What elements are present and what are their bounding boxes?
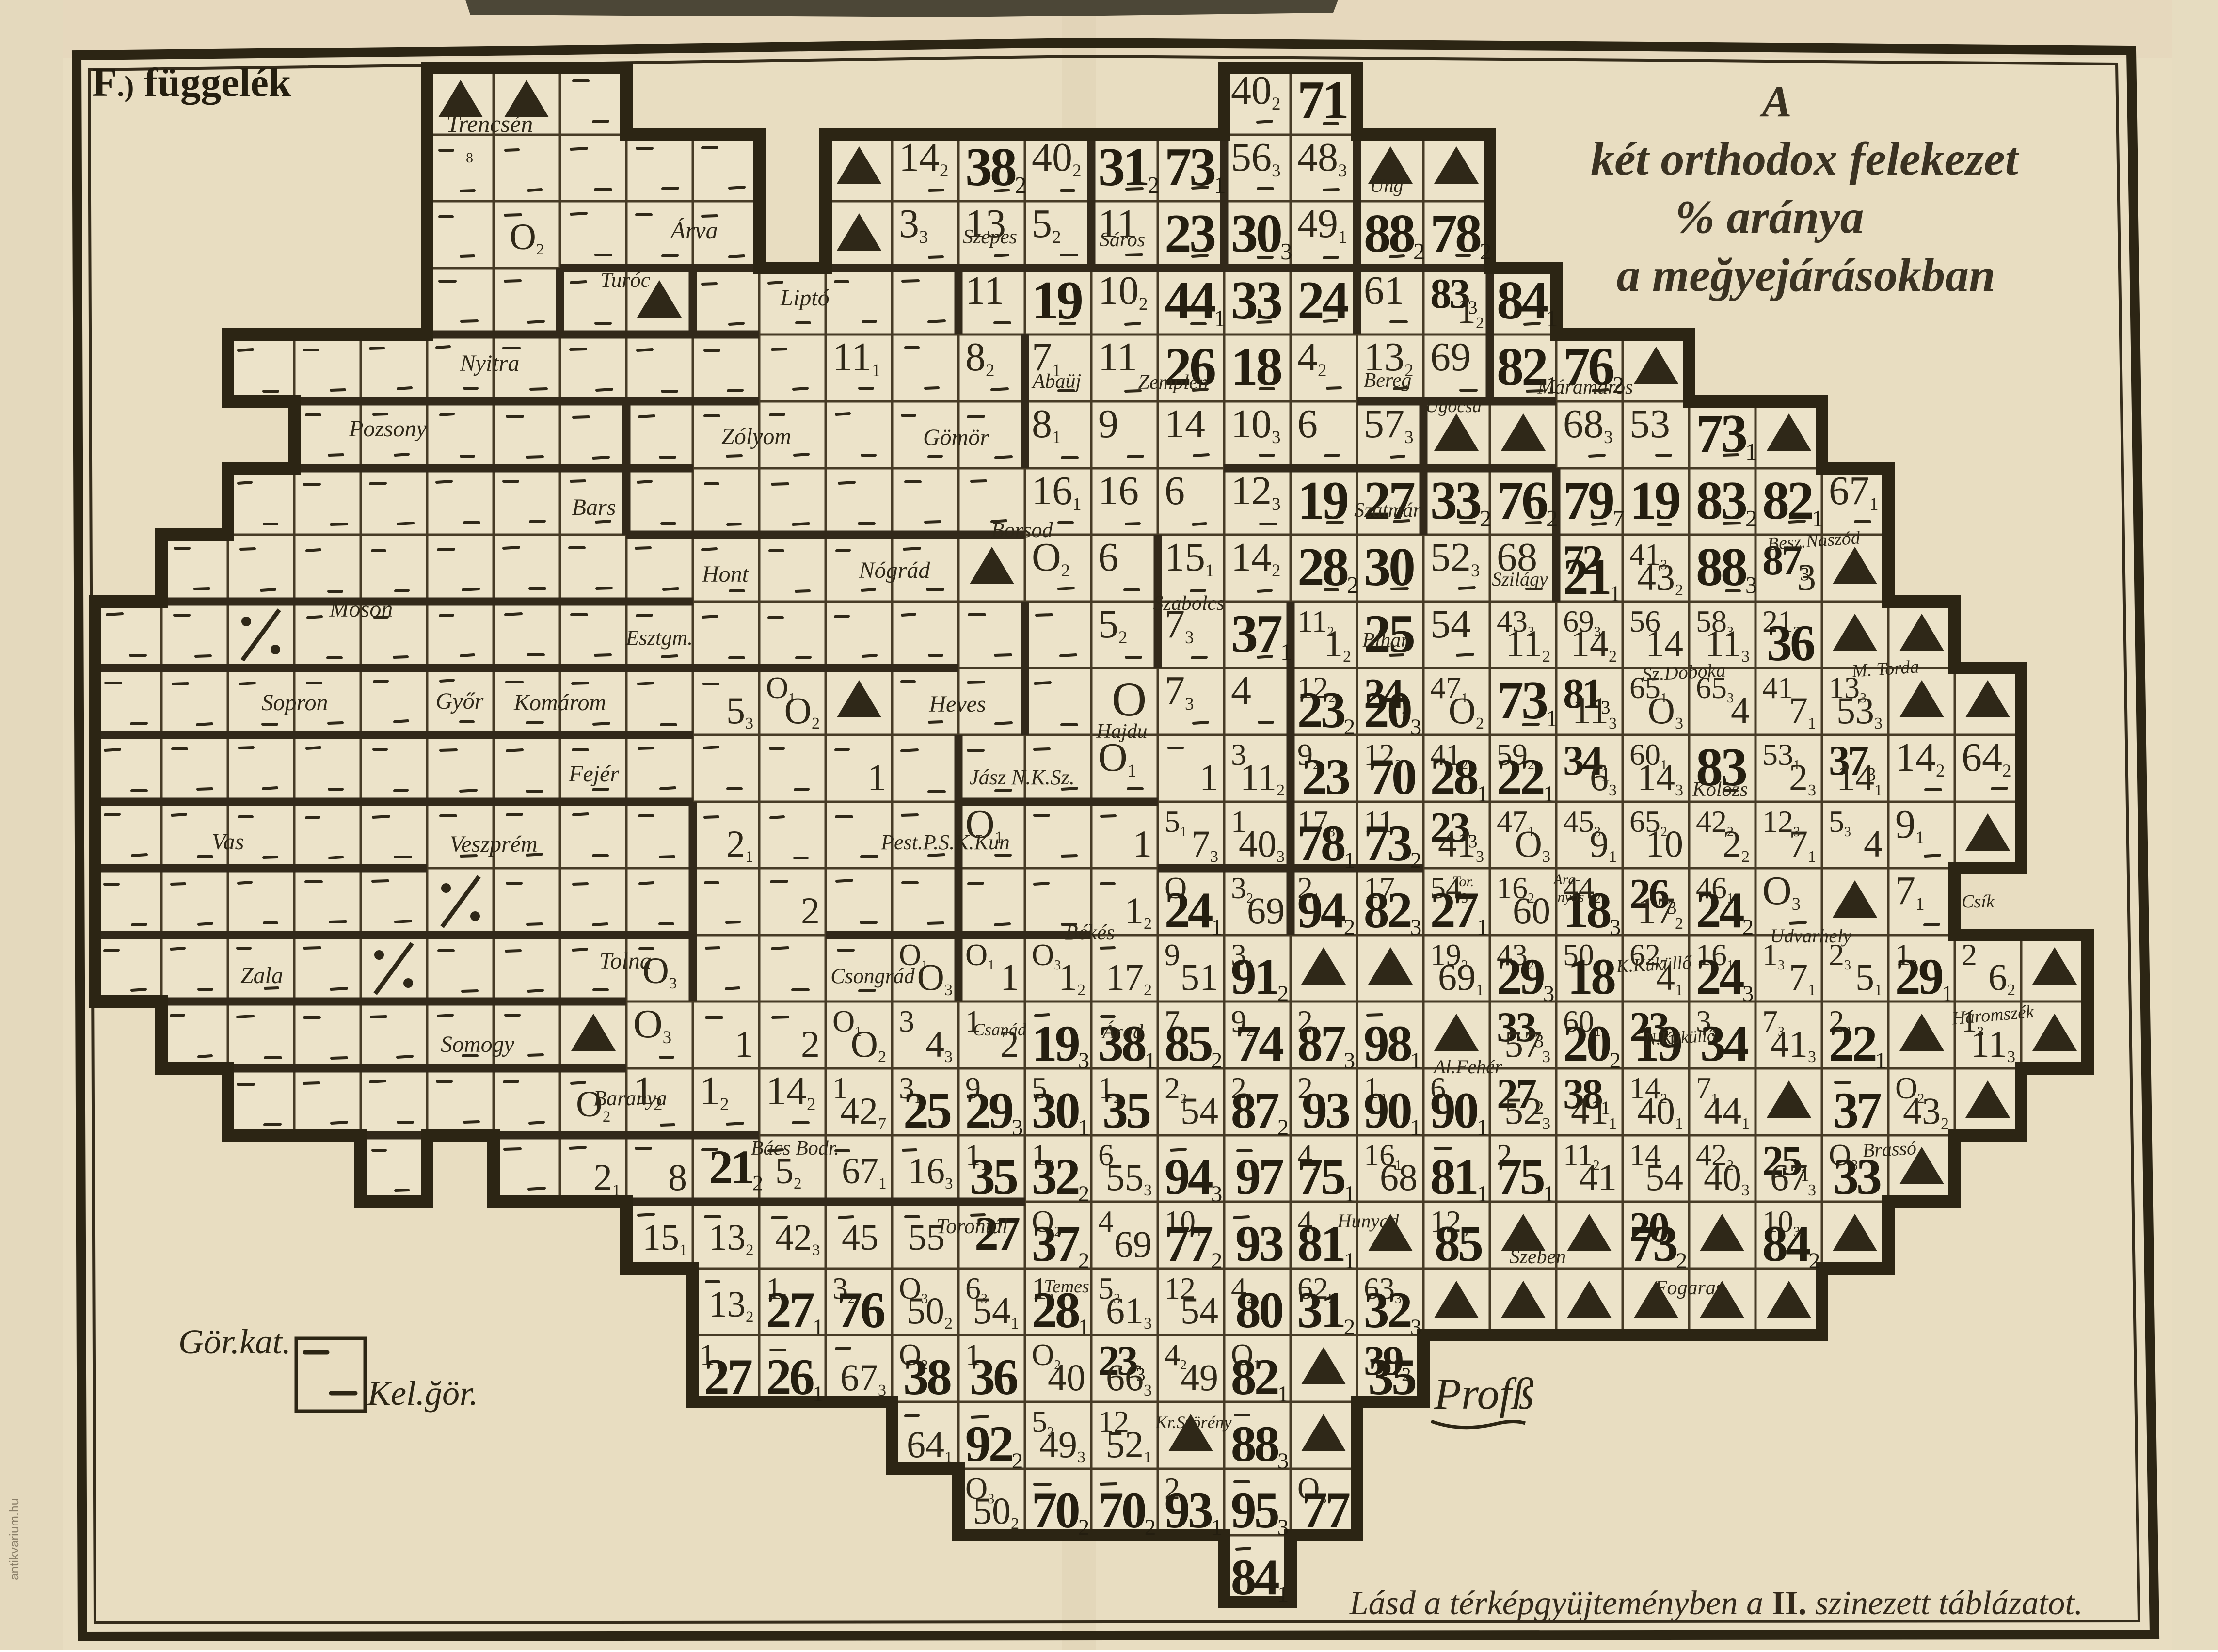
svg-text:37: 37 <box>1833 1082 1881 1139</box>
svg-text:Lásd a térképgyüjteményben a I: Lásd a térképgyüjteményben a II. szineze… <box>1349 1585 2083 1622</box>
svg-text:Baranya: Baranya <box>593 1086 667 1110</box>
svg-text:1: 1 <box>1000 956 1019 998</box>
svg-text:Pest.P.S.K.Kun: Pest.P.S.K.Kun <box>880 830 1010 854</box>
svg-text:9: 9 <box>1165 937 1180 972</box>
svg-text:54: 54 <box>1645 1156 1683 1198</box>
svg-text:76: 76 <box>837 1282 884 1338</box>
svg-text:Ugocsa: Ugocsa <box>1425 396 1482 416</box>
svg-text:93: 93 <box>1235 1215 1283 1272</box>
svg-text:Veszprém: Veszprém <box>449 831 537 857</box>
svg-text:69: 69 <box>1430 334 1471 380</box>
svg-text:19: 19 <box>1629 471 1679 531</box>
svg-text:Temes: Temes <box>1044 1276 1089 1297</box>
svg-text:Turóc: Turóc <box>601 268 651 292</box>
svg-text:Bereg: Bereg <box>1364 369 1412 392</box>
svg-text:2: 2 <box>801 1023 820 1065</box>
svg-text:Jász N.K.Sz.: Jász N.K.Sz. <box>969 765 1075 789</box>
svg-text:Abaüj: Abaüj <box>1031 370 1081 393</box>
svg-text:6: 6 <box>1098 535 1118 580</box>
svg-text:11: 11 <box>965 268 1005 313</box>
svg-text:Hont: Hont <box>702 561 750 587</box>
svg-text:4: 4 <box>1098 1204 1114 1239</box>
svg-text:38: 38 <box>903 1349 951 1405</box>
svg-text:O: O <box>1112 672 1147 726</box>
svg-text:11: 11 <box>1098 334 1137 380</box>
svg-text:Fogaras: Fogaras <box>1654 1277 1723 1299</box>
svg-text:4: 4 <box>1231 668 1251 713</box>
svg-text:K.Küküllő: K.Küküllő <box>1615 953 1693 977</box>
svg-text:9: 9 <box>1098 401 1118 446</box>
svg-text:Heves: Heves <box>928 691 986 717</box>
svg-text:Szabolcs: Szabolcs <box>1153 592 1225 615</box>
svg-text:Csanád: Csanád <box>973 1020 1027 1039</box>
svg-text:16: 16 <box>1098 468 1139 513</box>
svg-text:33: 33 <box>1231 270 1281 331</box>
svg-text:Zala: Zala <box>240 963 283 988</box>
svg-text:Bars: Bars <box>572 494 616 520</box>
svg-text:36: 36 <box>1767 615 1814 671</box>
svg-text:93: 93 <box>1302 1082 1349 1139</box>
svg-text:41: 41 <box>1579 1156 1617 1198</box>
svg-text:Nógrád: Nógrád <box>859 557 931 583</box>
svg-text:Torontál: Torontál <box>936 1214 1008 1238</box>
svg-text:Esztgm.: Esztgm. <box>625 626 693 650</box>
svg-text:1: 1 <box>1133 823 1152 865</box>
svg-text:nyos: nyos <box>1558 889 1584 905</box>
svg-text:18: 18 <box>1567 948 1615 1005</box>
svg-text:3: 3 <box>899 1004 914 1038</box>
svg-text:77: 77 <box>1302 1482 1350 1539</box>
svg-text:Al.Fehér: Al.Fehér <box>1432 1056 1502 1078</box>
svg-text:Vas: Vas <box>212 829 244 855</box>
svg-text:10: 10 <box>1645 823 1683 865</box>
svg-text:Szatmár: Szatmár <box>1354 499 1421 522</box>
svg-text:% aránya: % aránya <box>1675 191 1864 243</box>
svg-text:40: 40 <box>1048 1356 1085 1398</box>
svg-text:antikvarium.hu: antikvarium.hu <box>7 1498 21 1580</box>
svg-text:Hunyad: Hunyad <box>1337 1210 1400 1232</box>
svg-text:6: 6 <box>1297 401 1318 446</box>
svg-text:14: 14 <box>1645 622 1683 665</box>
svg-text:36: 36 <box>970 1349 1017 1405</box>
svg-text:54: 54 <box>1181 1289 1218 1332</box>
svg-text:45: 45 <box>842 1217 878 1258</box>
svg-text:69: 69 <box>1247 890 1285 932</box>
svg-text:Győr: Győr <box>436 688 484 714</box>
svg-text:Sz.Doboka: Sz.Doboka <box>1642 659 1726 685</box>
svg-text:61: 61 <box>1364 268 1404 313</box>
svg-text:Komárom: Komárom <box>513 690 606 715</box>
svg-text:70: 70 <box>1368 748 1415 805</box>
svg-text:N.Küküllő: N.Küküllő <box>1644 1026 1717 1049</box>
svg-text:Szepes: Szepes <box>963 226 1017 248</box>
svg-text:1: 1 <box>734 1023 753 1065</box>
svg-text:Szeben: Szeben <box>1510 1246 1566 1268</box>
svg-text:Gömör: Gömör <box>923 425 989 450</box>
svg-text:Fejér: Fejér <box>568 761 619 787</box>
svg-text:Trencsén: Trencsén <box>447 110 533 137</box>
svg-text:a meğyejárásokban: a meğyejárásokban <box>1616 249 1995 302</box>
svg-text:Gör.kat.: Gör.kat. <box>178 1322 291 1361</box>
svg-text:Árva: Árva <box>669 217 718 244</box>
svg-text:85: 85 <box>1435 1215 1482 1272</box>
svg-text:Liptó: Liptó <box>780 285 829 311</box>
svg-text:Bihar: Bihar <box>1362 629 1409 651</box>
svg-text:6: 6 <box>1165 468 1185 513</box>
svg-text:8: 8 <box>668 1156 687 1198</box>
svg-text:Csík: Csík <box>1962 891 1995 912</box>
svg-text:35: 35 <box>970 1148 1017 1205</box>
svg-text:Zemplén: Zemplén <box>1138 371 1209 394</box>
svg-text:Hajdu: Hajdu <box>1096 720 1148 743</box>
svg-text:60: 60 <box>1513 890 1550 932</box>
svg-text:97: 97 <box>1235 1148 1283 1205</box>
svg-text:51: 51 <box>1181 956 1218 998</box>
svg-text:Profß: Profß <box>1434 1369 1534 1418</box>
svg-text:68: 68 <box>1380 1156 1418 1198</box>
svg-text:27: 27 <box>704 1349 752 1405</box>
svg-text:Udvarhely: Udvarhely <box>1770 925 1851 947</box>
svg-text:Csongrád: Csongrád <box>830 964 915 988</box>
svg-text:Pozsony: Pozsony <box>349 416 427 442</box>
svg-text:71: 71 <box>1297 70 1347 130</box>
svg-text:54: 54 <box>1181 1090 1218 1132</box>
svg-text:Ara-: Ara- <box>1553 872 1580 888</box>
svg-text:Brassó: Brassó <box>1862 1137 1917 1161</box>
svg-text:1: 1 <box>867 756 886 798</box>
svg-text:Tor.: Tor. <box>1452 874 1474 890</box>
svg-text:80: 80 <box>1235 1282 1282 1338</box>
svg-text:49: 49 <box>1181 1356 1218 1398</box>
svg-text:Kr.Szörény: Kr.Szörény <box>1155 1413 1231 1432</box>
svg-text:74: 74 <box>1235 1015 1284 1072</box>
svg-text:4: 4 <box>1731 689 1750 731</box>
svg-text:Somogy: Somogy <box>441 1032 515 1057</box>
svg-text:35: 35 <box>1368 1349 1416 1405</box>
svg-text:19: 19 <box>1032 270 1082 331</box>
svg-text:két orthodox felekezet: két orthodox felekezet <box>1591 133 2020 185</box>
svg-text:Békés: Békés <box>1065 921 1115 944</box>
svg-text:A: A <box>1759 77 1791 126</box>
svg-text:Bács Bodr.: Bács Bodr. <box>751 1137 839 1160</box>
svg-text:8: 8 <box>466 150 473 166</box>
svg-text:Nyitra: Nyitra <box>460 350 520 376</box>
svg-text:35: 35 <box>1102 1082 1150 1139</box>
svg-text:Ung: Ung <box>1370 175 1404 196</box>
svg-text:Máramaros: Máramaros <box>1537 376 1633 398</box>
svg-text:3: 3 <box>1797 556 1816 598</box>
svg-text:4: 4 <box>1864 823 1883 865</box>
svg-text:Szilágy: Szilágy <box>1492 568 1548 590</box>
svg-text:2: 2 <box>801 890 820 932</box>
svg-text:53: 53 <box>1629 401 1670 446</box>
svg-text:Tolna: Tolna <box>599 948 652 974</box>
svg-text:Moson: Moson <box>329 596 393 622</box>
svg-text:Sáros: Sáros <box>1100 229 1145 251</box>
svg-text:Sopron: Sopron <box>262 690 328 715</box>
svg-text:Árad: Árad <box>1101 1020 1144 1043</box>
svg-text:69: 69 <box>1114 1223 1152 1265</box>
svg-text:Kel.ğör.: Kel.ğör. <box>367 1374 478 1413</box>
svg-text:14: 14 <box>1165 401 1205 446</box>
svg-text:1: 1 <box>1199 756 1218 798</box>
svg-text:Borsod: Borsod <box>991 518 1053 542</box>
svg-text:Kolozs: Kolozs <box>1692 778 1748 801</box>
svg-text:2: 2 <box>1962 937 1977 972</box>
svg-text:25: 25 <box>903 1082 951 1139</box>
svg-text:54: 54 <box>1430 602 1471 647</box>
svg-text:23: 23 <box>1302 748 1349 805</box>
svg-text:Zólyom: Zólyom <box>721 424 791 449</box>
